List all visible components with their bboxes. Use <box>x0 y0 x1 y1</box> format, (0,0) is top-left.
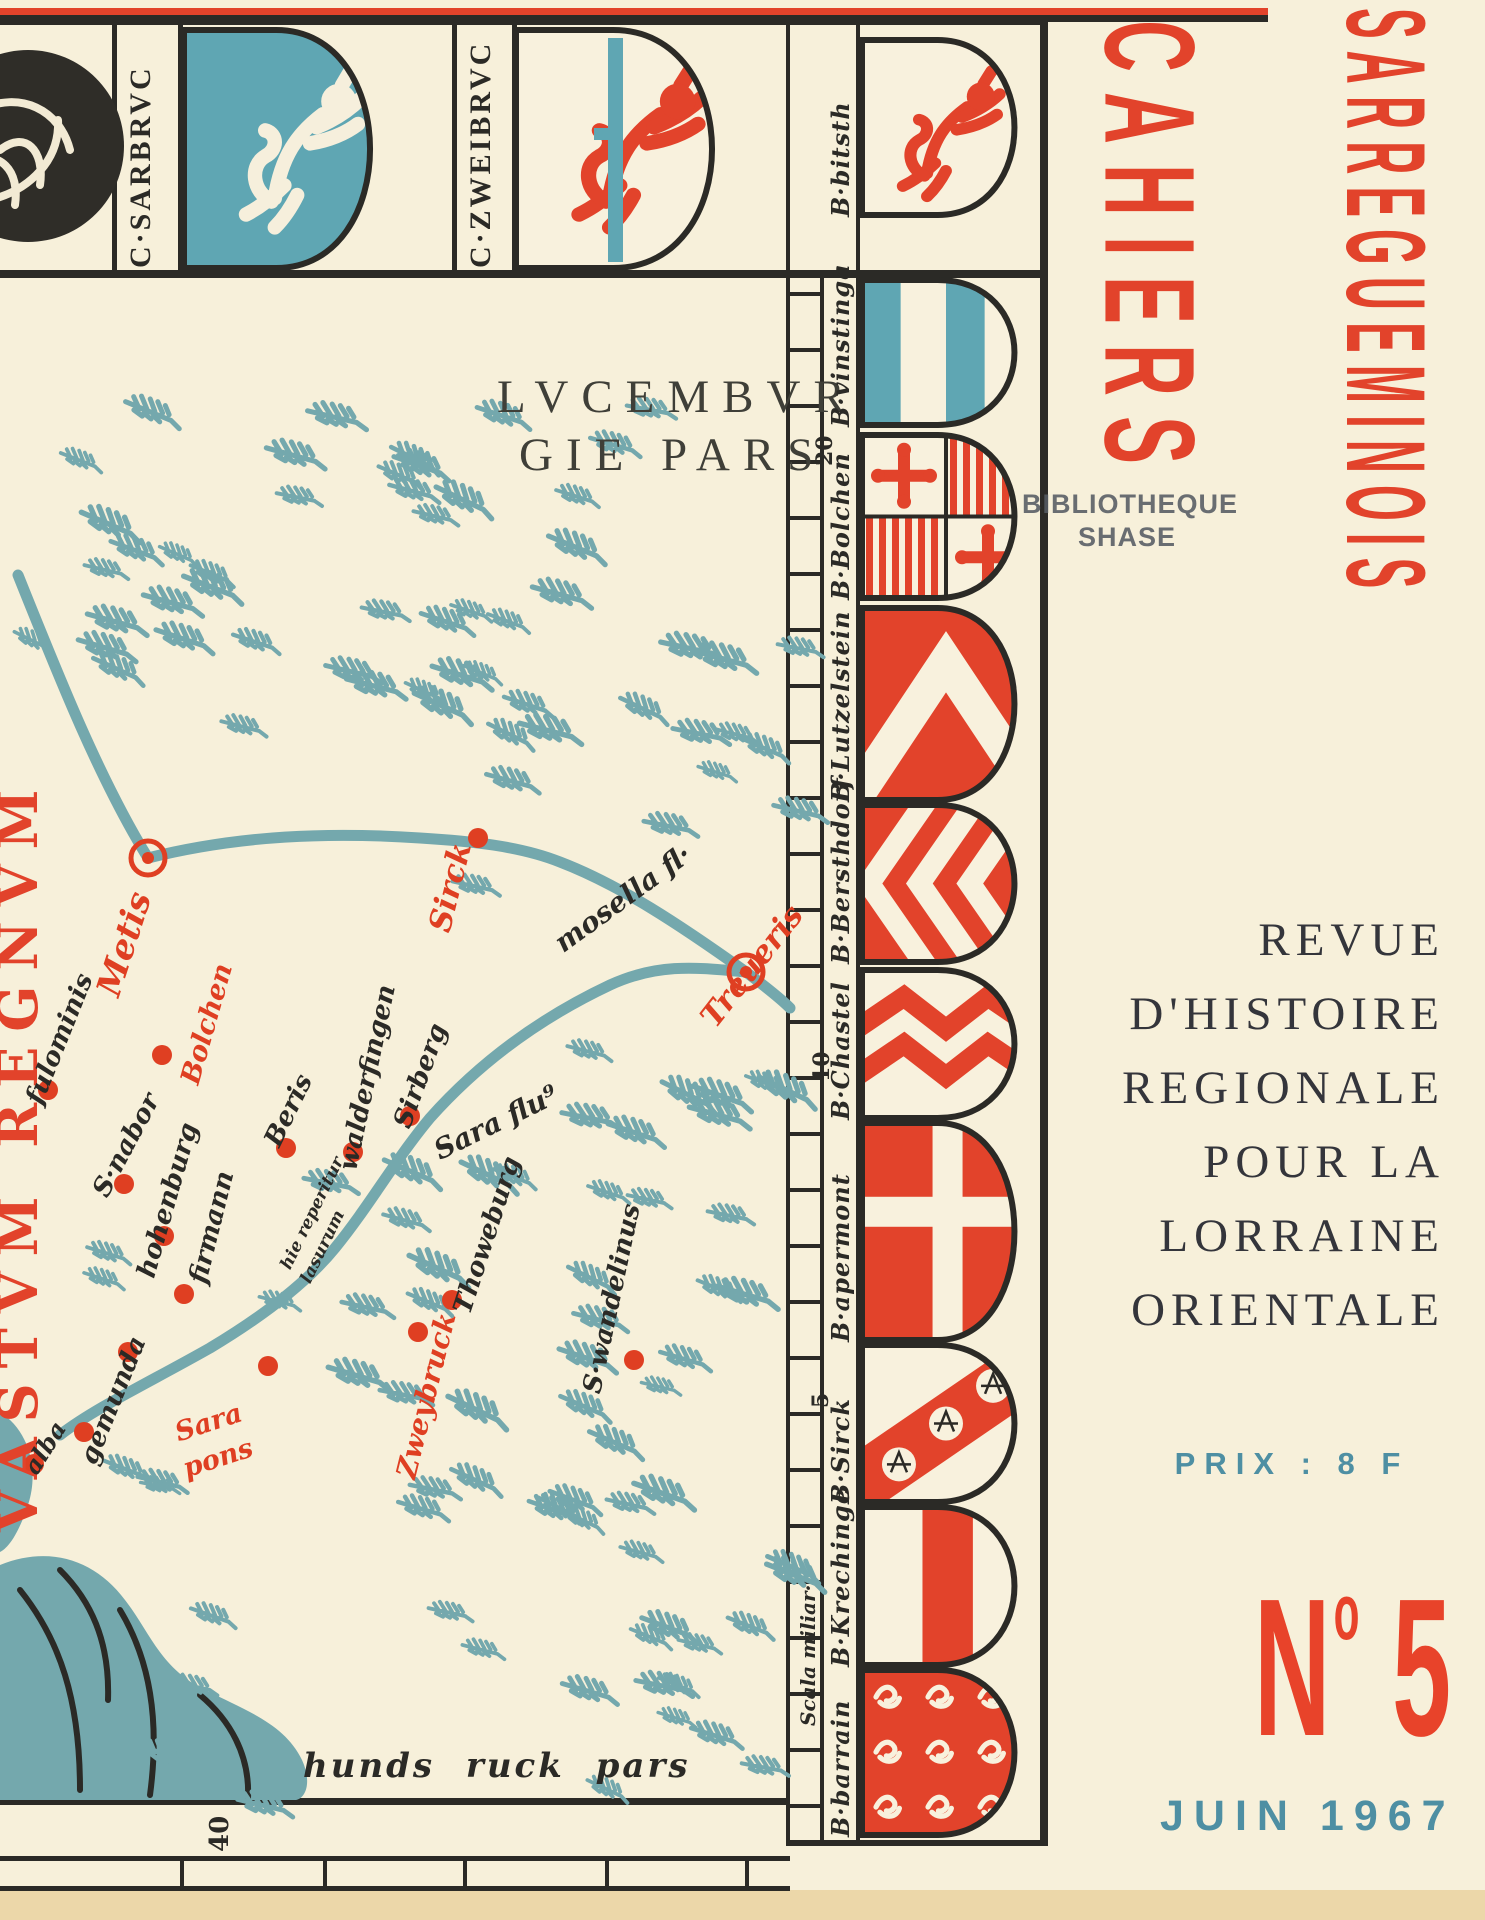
strip-shield-label: B·Chastel <box>826 981 855 1120</box>
map-bottom-caption: hunds ruck pars <box>303 1746 691 1786</box>
subtitle-line: REGIONALE <box>1122 1051 1445 1125</box>
strip-shield-label: B·Bolchen <box>826 452 855 600</box>
strip-shield-label: B·vinstinga <box>826 263 855 427</box>
subtitle-line: REVUE <box>1122 903 1445 977</box>
library-stamp: BIBLIOTHEQUE SHASE <box>1022 488 1232 554</box>
top-band-label: C·SARBRVC <box>124 65 158 268</box>
masthead-title-line1: CAHIERS <box>1098 20 1198 484</box>
subtitle-block: REVUE D'HISTOIRE REGIONALE POUR LA LORRA… <box>1122 903 1445 1347</box>
subtitle-line: POUR LA <box>1122 1125 1445 1199</box>
issue-prefix: N <box>1254 1558 1334 1777</box>
top-band-label: C·ZWEIBRVC <box>464 41 498 268</box>
strip-shield-label: B·Krechinge <box>826 1488 855 1667</box>
stamp-line1: BIBLIOTHEQUE <box>1022 488 1232 521</box>
issue-ordinal: o <box>1334 1568 1360 1656</box>
price-label: PRIX : 8 F <box>1152 1446 1432 1482</box>
magazine-cover: CAHIERS SARREGUEMINOIS BIBLIOTHEQUE SHAS… <box>0 0 1485 1920</box>
subtitle-line: D'HISTOIRE <box>1122 977 1445 1051</box>
map-scale-number: 40 <box>205 1816 235 1852</box>
map-scale-caption: Scala miliar· <box>796 1584 820 1726</box>
strip-shield-label: B·barrain <box>826 1700 855 1837</box>
strip-shield-label: B·Lutzelstein <box>826 611 855 803</box>
strip-shield-label: B·bitsth <box>826 101 855 217</box>
strip-shield-label: B·Bersthdorf <box>826 777 855 964</box>
map-edge-title: VASTVM REGNVM <box>0 775 50 1532</box>
issue-digit: 5 <box>1360 1558 1455 1777</box>
issue-date: JUIN 1967 <box>1160 1792 1440 1841</box>
stamp-line2: SHASE <box>1022 521 1232 554</box>
subtitle-line: ORIENTALE <box>1122 1273 1445 1347</box>
strip-shield-label: B·apermont <box>826 1173 855 1342</box>
issue-number: No 5 <box>1254 1570 1454 1766</box>
masthead-title-line2: SARREGUEMINOIS <box>1340 8 1428 600</box>
map-region-title-line1: LVCEMBVR <box>497 370 858 424</box>
map-region-title-line2: GIE PARS <box>519 428 826 482</box>
subtitle-line: LORRAINE <box>1122 1199 1445 1273</box>
